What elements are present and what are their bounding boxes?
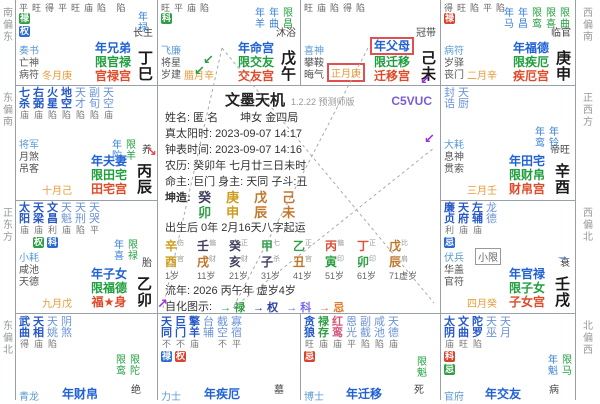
flow-month-label: 正月庚 <box>327 63 365 82</box>
xiaoxian-box: 小限 <box>475 248 501 265</box>
hua-badge-禄: 禄 <box>161 351 172 362</box>
gods-column: 将军月煞吊客 <box>19 140 39 176</box>
star-贪狼: 贪狼旺忌 <box>303 317 316 362</box>
bazi-label: 坤造: <box>165 190 191 206</box>
ziwei-chart-app: { "colors": { "main_star": "#2458c8", "m… <box>0 0 600 400</box>
star-天姚: 天姚陷 <box>46 317 59 349</box>
self-hua-arrow-blue: → <box>556 248 569 263</box>
star-天月: 天月 <box>499 317 512 375</box>
lunar-date: 农历: 癸卯年 七月廿三日未时 <box>165 158 432 174</box>
gods-column: 奏书亡神病符 <box>19 46 39 82</box>
star-台辅: 台辅 <box>202 317 215 362</box>
center-info-panel: 文墨天机 1.2.22 预测师版 C5VUC 姓名: 匿 名 坤女 金四局 真太… <box>157 85 440 313</box>
app-title: 文墨天机 <box>225 89 285 110</box>
star-恩光: 恩光平 <box>345 317 358 362</box>
star-columns: 贪狼旺忌禄存庙红鸾庙恩光平副截陷咸池陷天德庙 <box>303 317 400 362</box>
gods-column: 病符岁驿丧门 <box>444 46 464 82</box>
star-地空: 地空陷 <box>60 88 73 120</box>
palace-name-lines: 年迁移 <box>346 387 382 401</box>
star-文曲: 文曲旺 <box>457 317 470 375</box>
star-columns: 廉贞利忌天府庙左辅庙龙德 <box>443 203 498 248</box>
compass-right-2: 西偏北 <box>581 208 595 244</box>
palace-name-lines: 年兄弟限官禄官禄宫 <box>95 41 131 83</box>
hua-badges: 禄权 <box>19 13 30 37</box>
twelve-stage: 胎 <box>142 254 152 269</box>
star-太阴: 太阴庙科忌 <box>443 317 456 375</box>
bazi-pillar-2: 戊辰 <box>247 190 275 220</box>
star-咸池: 咸池陷 <box>373 317 386 362</box>
star-天空: 天空庙 <box>102 88 115 120</box>
star-寡宿: 寡宿平 <box>230 317 243 362</box>
star-龙德: 龙德 <box>485 203 498 248</box>
hua-badges: 禄 <box>444 13 455 24</box>
dayun-period-6[interactable]: 丁正卯印61岁 <box>357 237 389 283</box>
clock-time: 钟表时间: 2023-09-07 14:16 <box>165 142 432 158</box>
flow-month-label: 冬月庚 <box>42 67 72 82</box>
palace-xu[interactable]: 廉贞利忌天府庙左辅庙龙德伏兵华盖官符四月癸年官禄限子女子女宫衰壬戌小限 <box>440 200 575 313</box>
star-columns: 封诰天厨 <box>443 88 470 110</box>
palace-name-lines: 年父母限迁移迁移宫 <box>370 37 414 83</box>
star-天厨: 天厨 <box>457 88 470 110</box>
star-天同: 天同不禄 <box>160 317 173 362</box>
hua-badge-禄: 禄 <box>19 13 30 24</box>
hua-badge-权: 权 <box>19 26 30 37</box>
flow-mark-限喜: 限喜 <box>545 8 557 30</box>
palace-you[interactable]: 封诰天厨大耗息神贯索三月壬年田宅限财帛财帛宫帝旺辛酉年鸾年铃 <box>440 85 575 200</box>
palace-name-lines: 年疾厄 <box>204 387 240 401</box>
star-副旬: 副旬陷 <box>88 88 101 120</box>
flow-star-marks: 年鸾年铃 <box>534 127 560 149</box>
stem-branch: 丁巳 <box>137 51 154 83</box>
compass-left-2: 正东方 <box>1 208 15 244</box>
hua-badge-权: 权 <box>175 351 186 362</box>
star-天相: 天相庙 <box>32 317 45 349</box>
twelve-stage: 冠带 <box>416 24 436 39</box>
flow-mark-限陀: 限陀 <box>129 355 141 377</box>
twelve-stage: 死 <box>414 381 424 396</box>
compass-left-0: 南偏东 <box>1 8 15 44</box>
palace-mao[interactable]: 太阳庙天梁庙权文昌利科天魁庙天刑陷天哭平小耗咸池天德九月戊年子女限福德福★身胎乙… <box>15 200 157 313</box>
hua-badge-科: 科 <box>47 237 58 248</box>
gods-column: 博士 <box>304 392 324 404</box>
palace-shen[interactable]: 得旺陷平陷禄病符岁驿丧门二月辛年福德限疾厄疾厄宫临官庚申年马年昌限鸾限喜限曲 <box>440 0 575 85</box>
star-副截: 副截陷 <box>359 317 372 362</box>
flow-mark-年马: 年马 <box>503 8 515 30</box>
gods-column: 大耗息神贯索 <box>444 140 464 176</box>
compass-right-1: 正西方 <box>581 93 595 129</box>
flow-mark-年喜: 年喜 <box>113 240 125 262</box>
flow-mark-限马: 限马 <box>561 355 573 377</box>
dayun-period-0[interactable]: 辛伤酉官1岁 <box>165 237 197 283</box>
flow-star-marks: 年马年昌限鸾限喜限曲 <box>503 8 571 30</box>
dayun-period-5[interactable]: 丙偏寅印51岁 <box>325 237 357 283</box>
hua-badge-科: 科 <box>444 351 455 362</box>
hua-badge-忌: 忌 <box>444 237 455 248</box>
self-hua-arrow-purple-2: ↙ <box>420 72 431 88</box>
stem-branch: 戊午 <box>280 51 297 83</box>
flow-mark-年陀: 年陀 <box>111 140 123 162</box>
flow-mark-年昌: 年昌 <box>517 8 529 30</box>
flow-mark-年禄: 年禄 <box>137 12 149 34</box>
palace-name-lines: 年命宫限交友交友宫 <box>238 41 274 83</box>
qiyun-line: 出生后 0年 2月16天八字起运 <box>165 220 432 236</box>
palace-si[interactable]: 平旺得平旺庙陷 陷禄权奏书亡神病符冬月庚年兄弟限官禄官禄宫长生丁巳年禄 <box>15 0 157 85</box>
bazi-pillar-1: 庚申 <box>219 190 247 220</box>
palace-chou[interactable]: 天同不禄巨门不权擎羊庙台辅截空不寡宿平力士年疾厄墓 <box>157 313 300 400</box>
dayun-period-3[interactable]: 甲七子杀31岁 <box>261 237 293 283</box>
flow-mark-限魁: 限魁 <box>416 357 428 379</box>
flow-mark-年羊: 年羊 <box>254 8 266 30</box>
star-武曲: 武曲得 <box>18 317 31 349</box>
twelve-stage: 墓 <box>274 381 284 396</box>
flow-mark-限禄: 限禄 <box>127 240 139 262</box>
flow-star-marks: 年禄 <box>137 12 149 34</box>
star-阴煞: 阴煞 <box>60 317 73 349</box>
flow-month-label: 四月癸 <box>467 295 497 310</box>
gods-column: 飞廉将星岁建 <box>161 46 181 82</box>
flow-mark-限羊: 限羊 <box>125 140 137 162</box>
hua-badge-权: 权 <box>33 237 44 248</box>
life-body-lords: 命主: 巨门 身主: 天同 子斗:丑 <box>165 174 432 190</box>
flow-mark-年曲: 年曲 <box>268 8 280 30</box>
hua-badge-禄: 禄 <box>444 13 455 24</box>
palace-name-lines: 年子女限福德福★身 <box>91 267 127 309</box>
star-columns: 七杀庙右弼庙火星陷地空陷天才陷副旬陷天空庙 <box>18 88 115 120</box>
palace-name-lines: 年福德限疾厄疾厄宫 <box>513 41 549 83</box>
palace-wu[interactable]: 旺平庙陷科飞廉将星岁建腊月辛年命宫限交友交友宫沐浴戊午年羊年曲限昌 <box>157 0 300 85</box>
dayun-period-1[interactable]: 壬偏戌财11岁 <box>197 237 229 283</box>
dayun-period-2[interactable]: 癸正亥财21岁 <box>229 237 261 283</box>
compass-right-3: 北偏西 <box>581 321 595 357</box>
star-廉贞: 廉贞利忌 <box>443 203 456 248</box>
gods-column: 小耗咸池天德 <box>19 253 39 289</box>
flow-mark-年铃: 年铃 <box>548 127 560 149</box>
bazi-pillar-3: 己未 <box>275 190 303 220</box>
dayun-periods[interactable]: 辛伤酉官1岁壬偏戌财11岁癸正亥财21岁甲七子杀31岁乙正丑官41岁丙偏寅印51… <box>165 237 432 283</box>
palace-chen[interactable]: 七杀庙右弼庙火星陷地空陷天才陷副旬陷天空庙将军月煞吊客十月己年夫妻限田宅田宅宫养… <box>15 85 157 200</box>
flow-star-marks: 年羊年曲限昌 <box>254 8 294 30</box>
self-hua-arrow-purple-3: ↗ <box>157 296 168 312</box>
bazi-pillar-0: 癸卯 <box>191 190 219 220</box>
hua-badge-忌: 忌 <box>444 364 455 375</box>
star-天才: 天才陷 <box>74 88 87 120</box>
person-name-line: 姓名: 匿 名 坤女 金四局 <box>165 110 432 126</box>
flow-month-label: 二月辛 <box>467 67 497 82</box>
twelve-stage: 绝 <box>131 381 141 396</box>
stem-branch: 丙辰 <box>136 164 153 196</box>
star-擎羊: 擎羊庙 <box>188 317 201 362</box>
flow-star-marks: 限鸾限陀 <box>115 355 141 377</box>
gods-column: 喜神攀鞍晦气 <box>304 46 324 82</box>
user-code: C5VUC <box>391 94 432 108</box>
star-右弼: 右弼庙 <box>32 88 45 120</box>
flow-mark-年鸾: 年鸾 <box>534 127 546 149</box>
flow-year-line: 流年: 2026 丙午年 虚岁4岁 <box>165 283 432 299</box>
star-左辅: 左辅庙 <box>471 203 484 248</box>
gods-column: 官府 <box>444 392 464 404</box>
brightness-row: 平旺得平旺庙陷 陷 <box>19 1 130 14</box>
star-截空: 截空不 <box>216 317 229 362</box>
self-hua-arrow-green-2: ↙ <box>194 63 205 79</box>
star-文昌: 文昌利科 <box>46 203 59 248</box>
twelve-stage: 病 <box>549 381 559 396</box>
star-陀罗: 陀罗陷 <box>471 317 484 375</box>
compass-left-1: 东偏南 <box>1 93 15 129</box>
star-天梁: 天梁庙权 <box>32 203 45 248</box>
self-hua-arrow-purple-1: ↙ <box>424 131 435 147</box>
flow-star-marks: 年陀限羊 <box>111 140 137 162</box>
flow-month-label: 十月己 <box>42 182 72 197</box>
hua-badge-科: 科 <box>161 13 172 24</box>
star-火星: 火星陷 <box>46 88 59 120</box>
stem-branch: 辛酉 <box>554 164 571 196</box>
palace-yin[interactable]: 武曲得天相庙天姚陷阴煞青龙年财帛绝限鸾限陀 <box>15 313 157 400</box>
palace-hai[interactable]: 太阴庙科忌文曲旺陀罗陷天巫天月官府年交友病年魁限马 <box>440 313 575 400</box>
star-七杀: 七杀庙 <box>18 88 31 120</box>
stem-branch: 壬戌 <box>554 277 571 309</box>
flow-mark-限鸾: 限鸾 <box>531 8 543 30</box>
star-红鸾: 红鸾庙 <box>331 317 344 362</box>
star-天德: 天德庙 <box>387 317 400 362</box>
palace-zi[interactable]: 贪狼旺忌禄存庙红鸾庙恩光平副截陷咸池陷天德庙博士年迁移死限魁 <box>300 313 440 400</box>
star-天巫: 天巫 <box>485 317 498 375</box>
star-天刑: 天刑陷 <box>74 203 87 248</box>
dayun-period-4[interactable]: 乙正丑官41岁 <box>293 237 325 283</box>
palace-name-lines: 年财帛 <box>62 387 98 401</box>
flow-star-marks: 年魁限马 <box>547 355 573 377</box>
true-solar-time: 真太阳时: 2023-09-07 14:17 <box>165 126 432 142</box>
flow-mark-年魁: 年魁 <box>547 355 559 377</box>
self-hua-arrow-red: ↘ <box>146 144 157 160</box>
flow-mark-限昌: 限昌 <box>282 8 294 30</box>
flow-mark-限鸾: 限鸾 <box>115 355 127 377</box>
gods-column: 力士 <box>161 392 181 404</box>
star-巨门: 巨门不权 <box>174 317 187 362</box>
hua-badges: 科 <box>161 13 172 24</box>
palace-wei[interactable]: 旺庙陷得陷喜神攀鞍晦气正月庚年父母限迁移迁移宫冠带己未 <box>300 0 440 85</box>
app-version: 1.2.22 预测师版 <box>291 95 355 108</box>
star-封诰: 封诰 <box>443 88 456 110</box>
star-天魁: 天魁庙 <box>60 203 73 248</box>
stem-branch: 乙卯 <box>136 277 153 309</box>
bazi-four-pillars: 坤造: 癸卯庚申戊辰己未 <box>165 190 432 220</box>
flow-month-label: 三月壬 <box>467 182 497 197</box>
gods-column: 青龙 <box>19 392 39 404</box>
star-禄存: 禄存庙 <box>317 317 330 362</box>
star-太阳: 太阳庙 <box>18 203 31 248</box>
palace-name-lines: 年交友 <box>485 387 521 401</box>
dayun-period-7[interactable]: 戊比辰肩71虚岁 <box>389 237 421 283</box>
palace-name-lines: 年田宅限财帛财帛宫 <box>509 154 545 196</box>
hua-badge-忌: 忌 <box>304 351 315 362</box>
compass-right-0: 西偏南 <box>581 8 595 44</box>
star-天哭: 天哭平 <box>88 203 101 248</box>
flow-star-marks: 年喜限禄 <box>113 240 139 262</box>
gods-column: 伏兵华盖官符 <box>444 253 464 289</box>
star-columns: 太阴庙科忌文曲旺陀罗陷天巫天月 <box>443 317 512 375</box>
flow-month-label: 九月戊 <box>42 295 72 310</box>
star-columns: 武曲得天相庙天姚陷阴煞 <box>18 317 73 349</box>
flow-star-marks: 限魁 <box>416 357 428 379</box>
palace-name-lines: 年官禄限子女子女宫 <box>509 267 545 309</box>
star-天府: 天府庙 <box>457 203 470 248</box>
stem-branch: 庚申 <box>555 51 572 83</box>
star-columns: 太阳庙天梁庙权文昌利科天魁庙天刑陷天哭平 <box>18 203 101 248</box>
star-columns: 天同不禄巨门不权擎羊庙台辅截空不寡宿平 <box>160 317 243 362</box>
brightness-row: 旺庙陷得陷 <box>304 1 369 14</box>
flow-mark-限曲: 限曲 <box>559 8 571 30</box>
compass-left-3: 东偏北 <box>1 321 15 357</box>
